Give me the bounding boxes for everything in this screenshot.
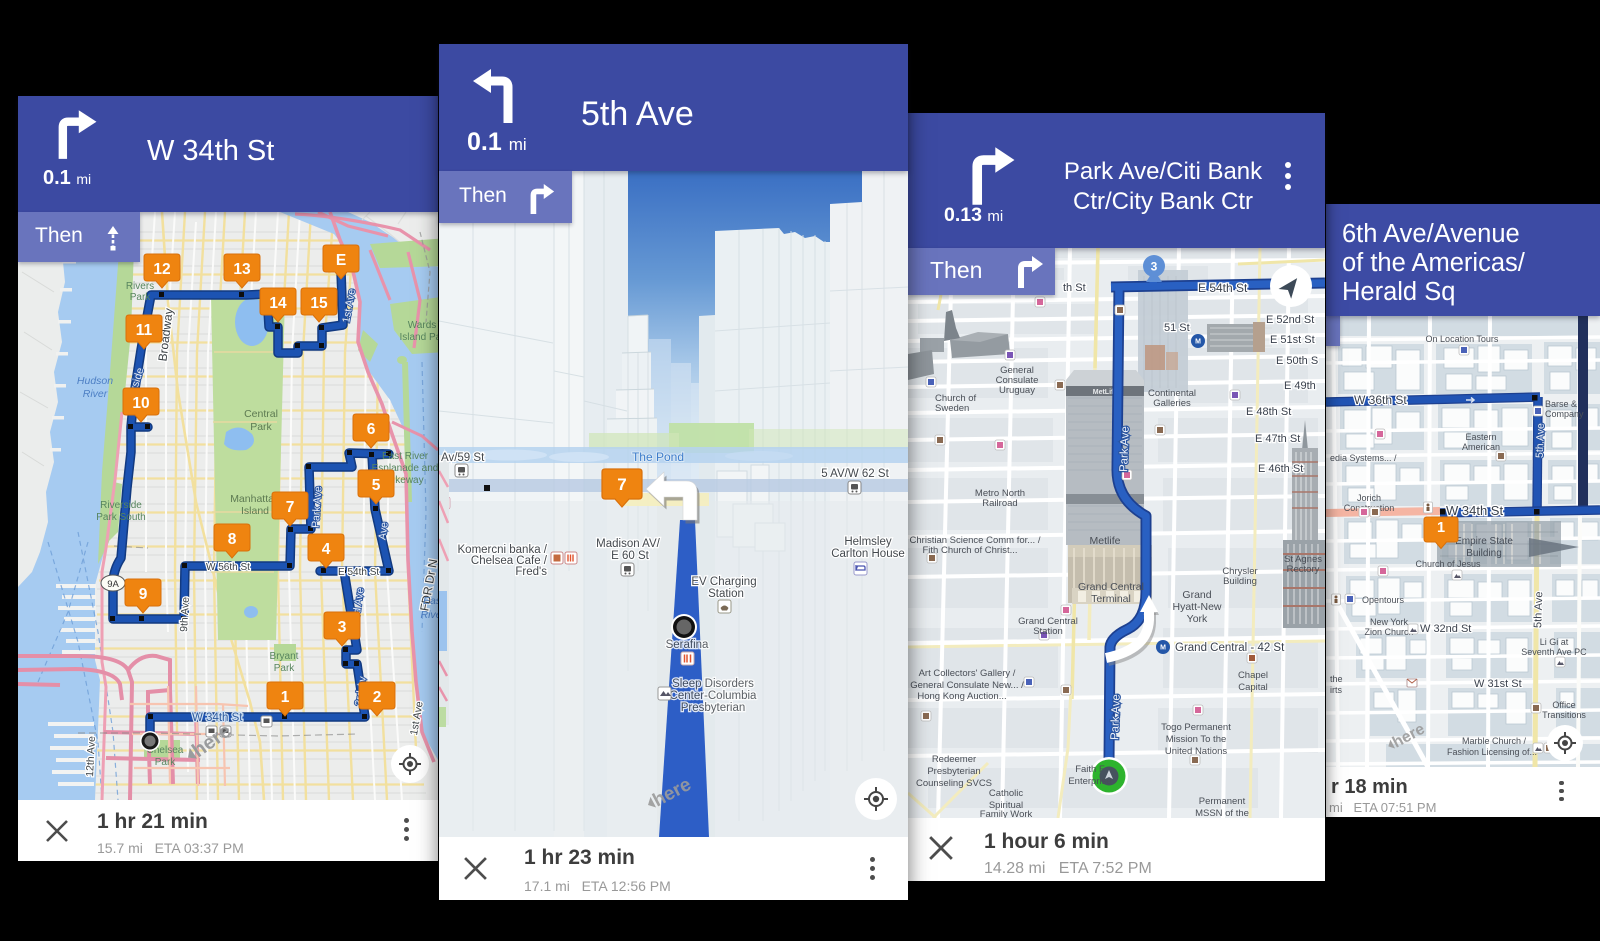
svg-text:Madison AV/: Madison AV/: [596, 538, 661, 550]
svg-text:Eas: Eas: [423, 595, 438, 607]
svg-text:Fred's: Fred's: [515, 566, 547, 578]
svg-text:Hyatt-New: Hyatt-New: [1172, 601, 1221, 613]
svg-text:Church of Jesus: Church of Jesus: [1415, 559, 1481, 569]
svg-text:E 54th St: E 54th St: [338, 567, 379, 578]
svg-text:Station: Station: [1033, 626, 1063, 637]
svg-text:Opentours: Opentours: [1362, 595, 1405, 605]
svg-text:E 51st St: E 51st St: [1270, 334, 1315, 346]
svg-text:Park Ave: Park Ave: [1118, 426, 1132, 472]
svg-text:Park Ave: Park Ave: [1109, 694, 1123, 740]
svg-text:1: 1: [281, 689, 290, 706]
svg-text:Catholic: Catholic: [989, 788, 1024, 799]
svg-text:th St: th St: [1063, 282, 1086, 294]
svg-text:Park: Park: [130, 292, 152, 303]
svg-text:E 60 St: E 60 St: [611, 550, 650, 562]
svg-text:Presbyterian: Presbyterian: [927, 766, 980, 777]
svg-text:6: 6: [367, 421, 376, 438]
svg-text:Bryant: Bryant: [270, 651, 299, 662]
svg-text:Park: Park: [274, 663, 296, 674]
svg-text:Ave: Ave: [376, 521, 390, 541]
svg-text:E 48th St: E 48th St: [1246, 406, 1291, 418]
svg-text:Metlife: Metlife: [1090, 535, 1121, 547]
svg-text:the: the: [1330, 674, 1343, 684]
svg-text:14: 14: [269, 295, 287, 312]
svg-text:Jorich: Jorich: [1357, 493, 1381, 503]
svg-text:W 56th St: W 56th St: [206, 562, 250, 573]
svg-text:Building: Building: [1466, 548, 1502, 559]
svg-text:Enterprise: Enterprise: [1068, 776, 1111, 787]
svg-text:Railroad: Railroad: [982, 498, 1017, 509]
svg-text:Grand Central: Grand Central: [1078, 581, 1144, 593]
svg-text:Eastern: Eastern: [1465, 432, 1496, 442]
svg-text:United Nations: United Nations: [1165, 746, 1228, 757]
svg-text:M: M: [1195, 339, 1201, 346]
svg-text:Permanent: Permanent: [1199, 796, 1246, 807]
svg-text:Presbyterian: Presbyterian: [681, 702, 746, 714]
svg-text:W 32nd St: W 32nd St: [1420, 623, 1471, 635]
svg-text:M: M: [1160, 645, 1166, 652]
svg-text:W 31st St: W 31st St: [1474, 678, 1522, 690]
svg-text:edia Systems... /: edia Systems... /: [1330, 453, 1397, 463]
svg-text:East River: East River: [382, 451, 429, 462]
svg-text:Central: Central: [244, 408, 278, 420]
svg-text:4: 4: [322, 541, 331, 558]
svg-text:E 52nd St: E 52nd St: [1266, 314, 1314, 326]
svg-text:irts: irts: [1330, 685, 1342, 695]
svg-text:On Location Tours: On Location Tours: [1426, 334, 1499, 344]
svg-text:Carlton House: Carlton House: [831, 548, 905, 560]
svg-text:Company: Company: [1545, 409, 1584, 419]
svg-text:Barse &: Barse &: [1545, 399, 1577, 409]
svg-text:Li Gi at: Li Gi at: [1540, 637, 1569, 647]
svg-text:Hong Kong Auction...: Hong Kong Auction...: [917, 691, 1006, 702]
svg-text:Fashion Licensing of...: Fashion Licensing of...: [1447, 747, 1537, 757]
svg-text:Rive: Rive: [420, 609, 438, 621]
svg-text:Wards: Wards: [408, 320, 437, 331]
svg-text:3: 3: [338, 619, 347, 636]
svg-text:5: 5: [372, 477, 381, 494]
svg-text:W 34th St: W 34th St: [192, 712, 243, 724]
svg-text:Zion Church: Zion Church: [1364, 627, 1413, 637]
svg-text:Counseling SVCS: Counseling SVCS: [916, 778, 992, 789]
svg-text:Park: Park: [250, 421, 272, 433]
svg-text:51 St: 51 St: [1164, 322, 1190, 334]
svg-text:10: 10: [132, 395, 149, 412]
svg-text:7: 7: [617, 475, 626, 494]
svg-text:W 34th St: W 34th St: [1446, 503, 1503, 518]
svg-text:Seventh Ave PC: Seventh Ave PC: [1521, 647, 1587, 657]
svg-text:Grand: Grand: [1182, 589, 1211, 601]
svg-text:Building: Building: [1223, 576, 1257, 587]
svg-text:Station: Station: [708, 588, 744, 600]
svg-text:Office: Office: [1552, 700, 1575, 710]
svg-text:Island: Island: [241, 505, 269, 517]
svg-text:12: 12: [153, 261, 170, 278]
svg-text:E 54th St: E 54th St: [1198, 281, 1248, 295]
svg-text:9: 9: [139, 586, 148, 603]
svg-text:E 50th S: E 50th S: [1276, 355, 1318, 367]
svg-text:Serafina: Serafina: [666, 639, 709, 651]
svg-text:E: E: [336, 252, 346, 269]
svg-text:Helmsley: Helmsley: [844, 536, 892, 548]
svg-text:15: 15: [310, 295, 328, 312]
svg-text:5th Ave: 5th Ave: [1532, 591, 1545, 628]
svg-text:Family Work: Family Work: [980, 809, 1033, 818]
svg-text:Transitions: Transitions: [1542, 710, 1586, 720]
svg-text:3: 3: [1151, 260, 1158, 274]
svg-text:MSSN of the: MSSN of the: [1195, 808, 1249, 818]
svg-text:5 AV/W 62 St: 5 AV/W 62 St: [821, 468, 889, 480]
svg-text:Center-Columbia: Center-Columbia: [670, 690, 758, 702]
svg-text:Riverside: Riverside: [100, 500, 142, 511]
svg-text:E 47th St: E 47th St: [1255, 433, 1300, 445]
svg-text:9th Ave: 9th Ave: [178, 597, 192, 633]
svg-text:EV Charging: EV Charging: [691, 576, 756, 588]
svg-text:Galleries: Galleries: [1153, 398, 1191, 409]
svg-text:E 49th: E 49th: [1284, 380, 1316, 392]
svg-text:General Consulate New... /: General Consulate New... /: [910, 680, 1024, 691]
svg-text:E 46th St: E 46th St: [1258, 463, 1303, 475]
svg-text:Park: Park: [155, 757, 177, 768]
svg-text:New York: New York: [1370, 617, 1409, 627]
svg-text:Marble Church /: Marble Church /: [1462, 736, 1527, 746]
svg-text:Grand Central - 42 St: Grand Central - 42 St: [1175, 642, 1285, 654]
svg-text:Terminal: Terminal: [1091, 593, 1131, 605]
svg-text:Art Collectors' Gallery /: Art Collectors' Gallery /: [919, 668, 1016, 679]
svg-text:7: 7: [286, 499, 295, 516]
svg-text:Fith Church of Christ...: Fith Church of Christ...: [922, 545, 1017, 556]
svg-text:Faith F: Faith F: [1075, 764, 1105, 775]
svg-text:1: 1: [1437, 520, 1445, 536]
svg-text:11: 11: [136, 322, 153, 339]
svg-text:Island Par: Island Par: [399, 332, 438, 343]
svg-text:Redeemer: Redeemer: [932, 754, 976, 765]
svg-text:9A: 9A: [107, 579, 119, 590]
svg-text:Uruguay: Uruguay: [999, 385, 1035, 396]
svg-text:Empire State: Empire State: [1455, 536, 1513, 547]
svg-text:Park South: Park South: [96, 512, 145, 523]
svg-text:Mission To the: Mission To the: [1166, 734, 1227, 745]
svg-text:Togo Permanent: Togo Permanent: [1161, 722, 1231, 733]
svg-text:13: 13: [233, 261, 251, 278]
svg-text:The Pond: The Pond: [632, 450, 684, 464]
svg-text:Rectory: Rectory: [1287, 564, 1320, 575]
svg-text:York: York: [1187, 613, 1208, 625]
svg-text:Capital: Capital: [1238, 682, 1268, 693]
svg-text:Sweden: Sweden: [935, 403, 969, 414]
svg-text:Rivers: Rivers: [126, 281, 154, 292]
svg-text:Av/59 St: Av/59 St: [441, 452, 485, 464]
svg-text:W 36th St: W 36th St: [1354, 393, 1407, 407]
svg-text:8: 8: [228, 531, 237, 548]
svg-text:Hudson: Hudson: [77, 375, 113, 387]
svg-text:5th Ave: 5th Ave: [1534, 423, 1547, 458]
svg-text:Chapel: Chapel: [1238, 670, 1268, 681]
svg-text:2: 2: [373, 689, 382, 706]
svg-text:American: American: [1462, 442, 1500, 452]
svg-text:River: River: [83, 388, 108, 400]
svg-text:12th Ave: 12th Ave: [84, 736, 98, 777]
svg-text:Sleep Disorders: Sleep Disorders: [672, 678, 754, 690]
